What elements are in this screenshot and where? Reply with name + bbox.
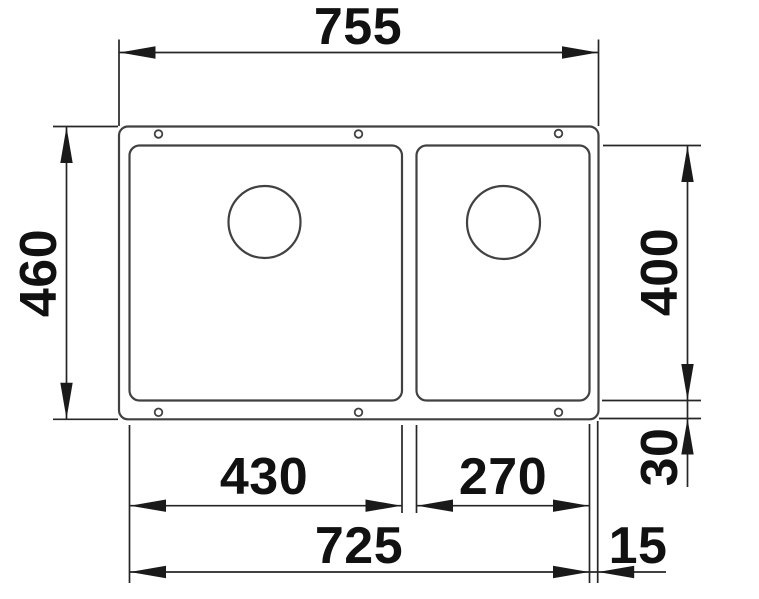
arrowhead-left — [130, 566, 166, 578]
dim-label-inner-span: 725 — [315, 517, 403, 575]
arrowhead-left — [130, 500, 166, 512]
sink-outer-rim — [119, 127, 599, 420]
arrowhead-down — [60, 383, 72, 419]
sink-technical-drawing: 755 460 400 30 430 — [0, 0, 759, 599]
technical-drawing-canvas: 755 460 400 30 430 — [0, 0, 759, 599]
arrowhead-left — [120, 46, 156, 58]
left-drain-hole — [229, 186, 301, 258]
mounting-hole — [555, 409, 563, 417]
arrowhead-right — [562, 46, 598, 58]
mounting-hole — [355, 409, 363, 417]
dim-overall-width: 755 — [119, 0, 599, 126]
dim-label-bowl-depth: 400 — [631, 228, 689, 316]
right-drain-hole — [467, 186, 540, 259]
mounting-hole — [555, 130, 563, 138]
dim-label-overall-width: 755 — [314, 0, 402, 56]
left-bowl — [130, 146, 403, 401]
mounting-hole — [155, 130, 163, 138]
dim-bottom-rim: 30 — [599, 401, 701, 488]
mounting-hole — [355, 130, 363, 138]
arrowhead-up — [60, 127, 72, 163]
dim-bowl-depth: 400 — [602, 146, 701, 401]
arrowhead-up — [681, 146, 693, 182]
dim-label-bottom-rim: 30 — [631, 428, 689, 487]
dim-overall-depth: 460 — [10, 127, 118, 420]
arrowhead-right — [553, 500, 589, 512]
arrowhead-down — [681, 364, 693, 400]
mounting-hole — [155, 409, 163, 417]
dim-label-right-edge-gap: 15 — [609, 517, 668, 575]
dim-right-bowl-width: 270 — [417, 424, 590, 583]
dim-label-right-bowl-width: 270 — [459, 448, 547, 506]
right-bowl — [417, 146, 590, 401]
dim-label-overall-depth: 460 — [10, 229, 68, 317]
sink-outline-group — [119, 127, 599, 420]
dim-label-left-bowl-width: 430 — [220, 448, 308, 506]
arrowhead-left — [417, 500, 453, 512]
arrowhead-right — [553, 566, 589, 578]
arrowhead-right — [366, 500, 402, 512]
dim-inner-span: 725 — [130, 517, 590, 578]
